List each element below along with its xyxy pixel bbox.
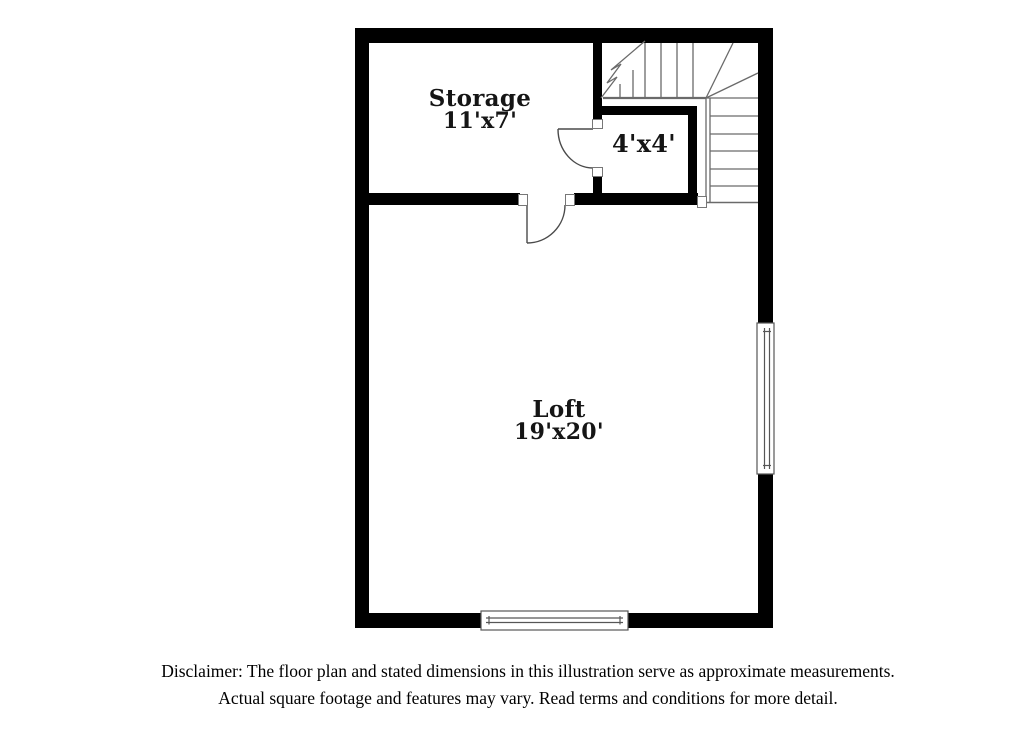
room-dimensions: 4'x4'	[594, 132, 694, 156]
room-dimensions: 19'x20'	[469, 421, 649, 444]
window-right	[757, 323, 774, 474]
floor-plan-page: Storage 11'x7' 4'x4' Loft 19'x20' Discla…	[0, 0, 1024, 744]
disclaimer-line-1: Disclaimer: The floor plan and stated di…	[32, 658, 1024, 685]
loft-room-label: Loft 19'x20'	[469, 398, 649, 444]
room-name: Storage	[390, 87, 570, 110]
room-name: Loft	[469, 398, 649, 421]
stair-newel-post	[697, 196, 707, 208]
window-bottom	[481, 611, 628, 630]
door-swing-storage	[527, 205, 565, 243]
stairs	[601, 41, 758, 203]
room-dimensions: 11'x7'	[390, 110, 570, 133]
door-jamb	[592, 119, 603, 129]
door-jamb	[592, 167, 603, 177]
closet-room-label: 4'x4'	[594, 132, 694, 156]
disclaimer: Disclaimer: The floor plan and stated di…	[32, 658, 1024, 712]
door-swing-closet	[558, 129, 593, 168]
disclaimer-line-2: Actual square footage and features may v…	[32, 685, 1024, 712]
door-jamb	[518, 194, 528, 206]
storage-room-label: Storage 11'x7'	[390, 87, 570, 133]
stair-break-line	[601, 41, 645, 98]
door-jamb	[565, 194, 575, 206]
